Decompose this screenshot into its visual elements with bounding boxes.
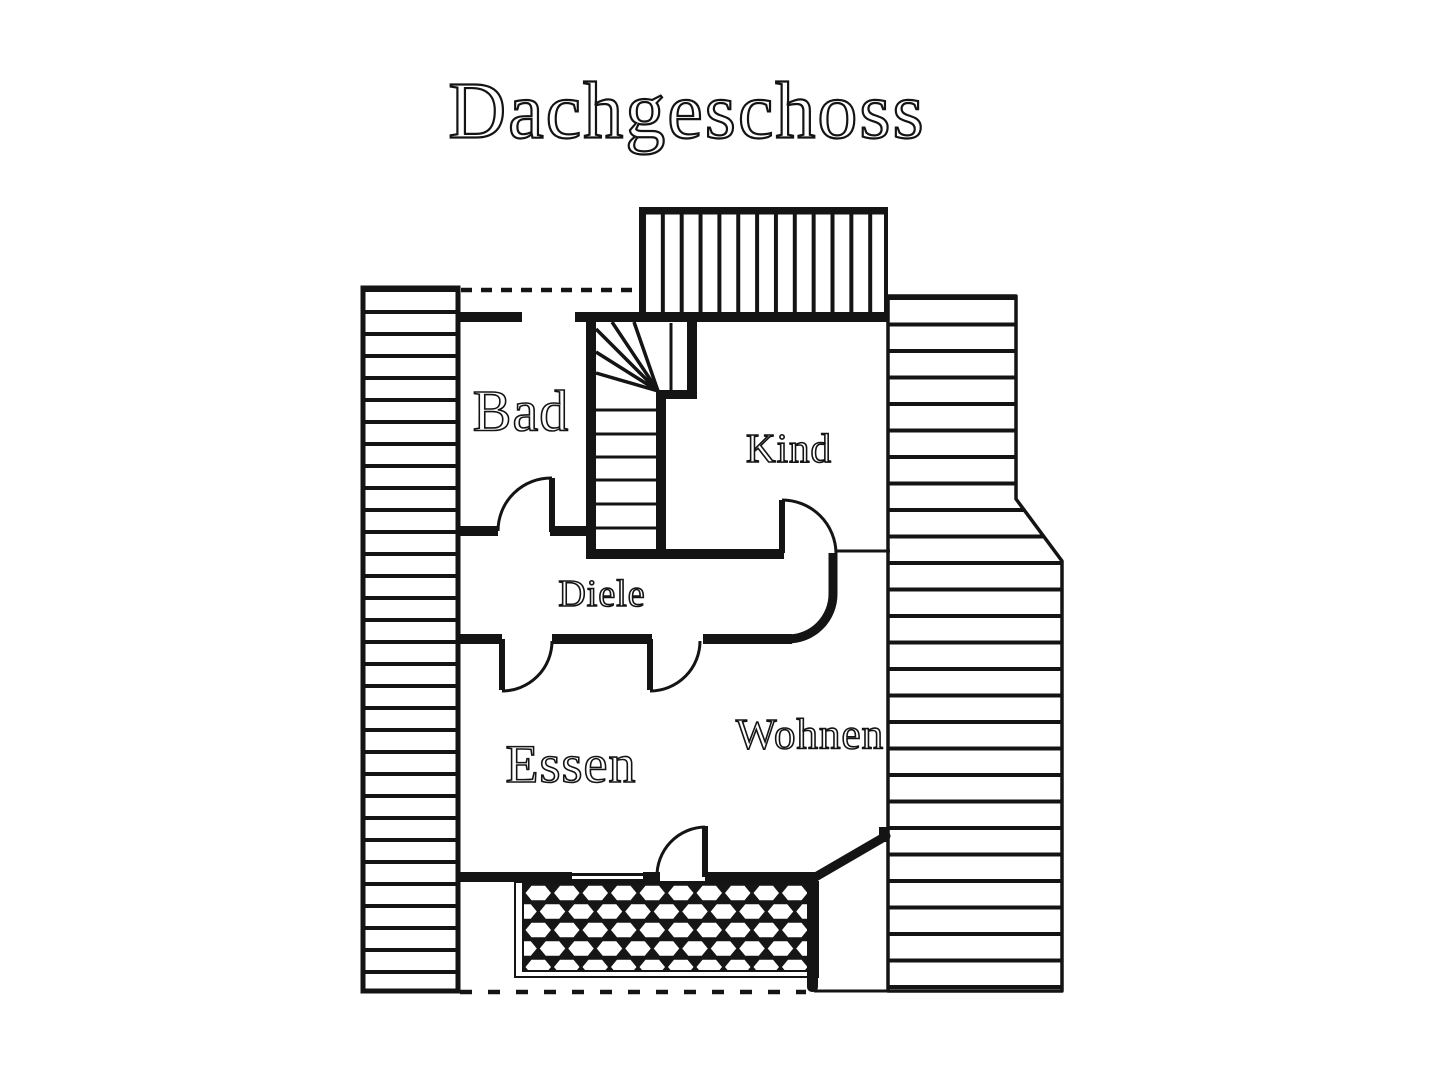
- wall-kind-bottom: [586, 549, 784, 559]
- left-roof-hatch: [363, 288, 458, 991]
- floor-plan-drawing: [0, 0, 1440, 1079]
- wall-diele-bottom-b: [552, 634, 652, 644]
- wall-bad-bottom-right: [550, 526, 596, 536]
- page-title: Dachgeschoss: [448, 67, 925, 158]
- diele-door-2-arc: [650, 641, 700, 691]
- bad-door-arc: [498, 478, 552, 531]
- doors: [498, 478, 836, 877]
- wall-bad-top: [458, 312, 522, 322]
- bad-door-leaf: [549, 478, 555, 532]
- wall-diele-curved: [788, 553, 833, 639]
- wall-stair-right: [656, 390, 666, 558]
- diele-door-2-leaf: [647, 639, 653, 690]
- wall-bad-bottom-left: [458, 526, 498, 536]
- room-label-bad: Bad: [473, 378, 569, 445]
- diele-door-1-leaf: [499, 639, 505, 690]
- wall-essen-bottom-a: [458, 872, 572, 882]
- wall-winder-right: [687, 322, 697, 399]
- essen-door-arc: [657, 827, 705, 877]
- kind-door-leaf: [779, 500, 785, 553]
- terrace-hex-paving: [524, 884, 810, 970]
- terrace-right-wall: [807, 878, 818, 992]
- wall-diele-bottom-a: [458, 634, 502, 644]
- wall-diele-bottom-c: [703, 634, 792, 644]
- wall-stair-left: [586, 322, 596, 558]
- balcony: [639, 209, 888, 316]
- room-label-diele: Diele: [558, 572, 645, 616]
- room-label-essen: Essen: [506, 733, 637, 795]
- diele-door-1-arc: [502, 641, 552, 691]
- wall-winder-bottom: [656, 390, 697, 399]
- kind-door-arc: [782, 500, 836, 553]
- right-roof-hatch: [888, 296, 1062, 991]
- essen-door-leaf: [702, 826, 708, 877]
- room-label-wohnen: Wohnen: [736, 711, 884, 760]
- floor-plan-page: Dachgeschoss Bad Kind Diele Essen Wohnen: [0, 0, 1440, 1079]
- terrace: [515, 878, 888, 992]
- room-label-kind: Kind: [746, 424, 832, 472]
- wall-diagonal: [812, 836, 886, 879]
- wall-top: [575, 312, 888, 322]
- wall-essen-bottom-c: [705, 872, 818, 882]
